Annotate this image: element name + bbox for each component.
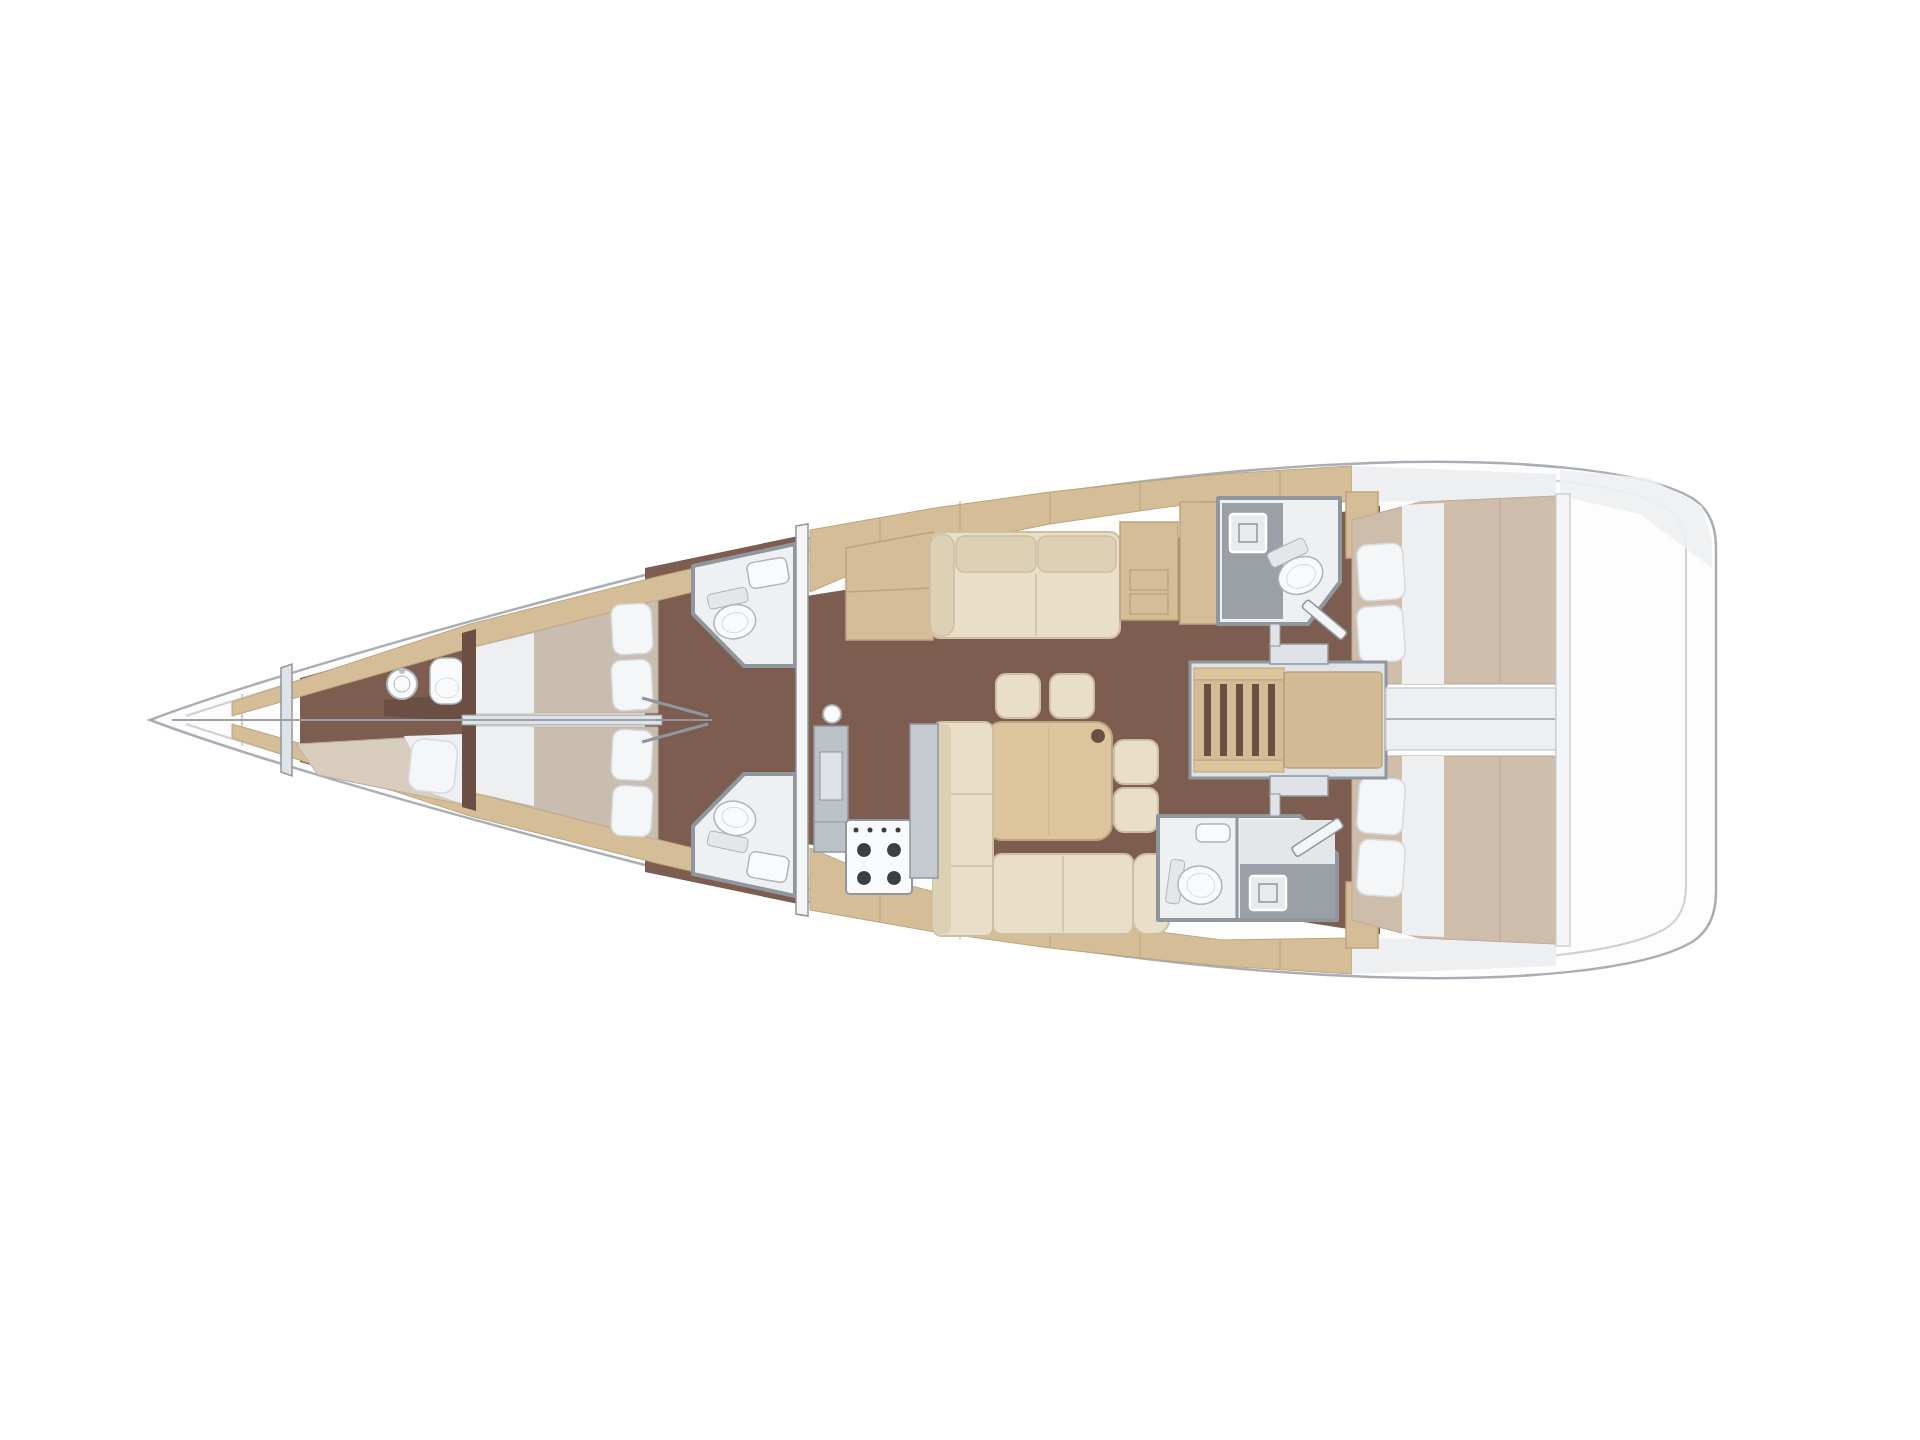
aft-head-cabinet	[1180, 502, 1218, 624]
burner-icon	[856, 870, 872, 886]
galley-cabinet-panel	[820, 752, 842, 800]
stove-knob	[868, 828, 873, 833]
main-bulkhead	[796, 524, 808, 916]
aft-pillow	[1356, 542, 1406, 601]
door-frame-post	[1270, 624, 1280, 646]
crew-sink-faucet	[399, 668, 405, 674]
burner-icon	[856, 842, 872, 858]
aft-cabin-bottom	[1346, 756, 1556, 948]
burner-icon	[886, 842, 902, 858]
galley-counter	[910, 724, 938, 878]
companionway-landing	[1284, 672, 1382, 768]
crew-pillow	[407, 738, 458, 795]
cabin-door-frame	[1270, 644, 1328, 664]
aft-pillow	[1356, 776, 1406, 835]
shower-drain-icon	[1230, 514, 1266, 552]
forward-pillow	[611, 603, 654, 655]
head-sink-icon	[1196, 824, 1230, 842]
salon-side-cabinet	[846, 532, 933, 640]
salon-sofa	[930, 532, 1120, 638]
aft-cabin-top	[1346, 492, 1556, 684]
stair-rail	[1194, 760, 1284, 772]
stair-rail	[1194, 668, 1284, 680]
sofa-back-cushion	[1038, 536, 1116, 572]
aft-head-bottom	[1158, 816, 1344, 920]
stove-knob	[896, 828, 901, 833]
forward-bed-top-sheet	[476, 633, 534, 713]
shower-drain-icon	[1250, 876, 1286, 910]
stove-knob	[882, 828, 887, 833]
stool	[1050, 674, 1094, 718]
crew-toilet-lid	[435, 678, 459, 698]
forward-pillow	[611, 729, 654, 781]
aft-bed-top-sheet	[1402, 503, 1444, 684]
table-corner-detail	[1091, 729, 1105, 743]
sofa-arm	[930, 534, 954, 636]
floorplan-canvas	[0, 0, 1920, 1440]
aft-head-top	[1180, 498, 1348, 640]
burner-icon	[886, 870, 902, 886]
stool	[1114, 788, 1158, 832]
sofa-back-cushion	[956, 536, 1036, 572]
stool	[996, 674, 1040, 718]
stern-bulkhead-wall	[1556, 494, 1570, 946]
stool	[1114, 740, 1158, 784]
forward-pillow	[611, 659, 654, 711]
stove-knob	[854, 828, 859, 833]
aft-bed-bottom-sheet	[1402, 756, 1444, 937]
galley-sink-icon	[823, 705, 841, 723]
aft-pillow	[1356, 604, 1406, 663]
forward-bed-bottom-sheet	[476, 727, 534, 806]
cabin-door-frame	[1270, 776, 1328, 796]
salon-end-table	[1120, 522, 1178, 620]
stove-icon	[846, 820, 912, 894]
aft-pillow	[1356, 838, 1406, 897]
door-frame-post	[1270, 794, 1280, 816]
forward-pillow	[611, 785, 654, 837]
yacht-floorplan	[0, 0, 1920, 1440]
